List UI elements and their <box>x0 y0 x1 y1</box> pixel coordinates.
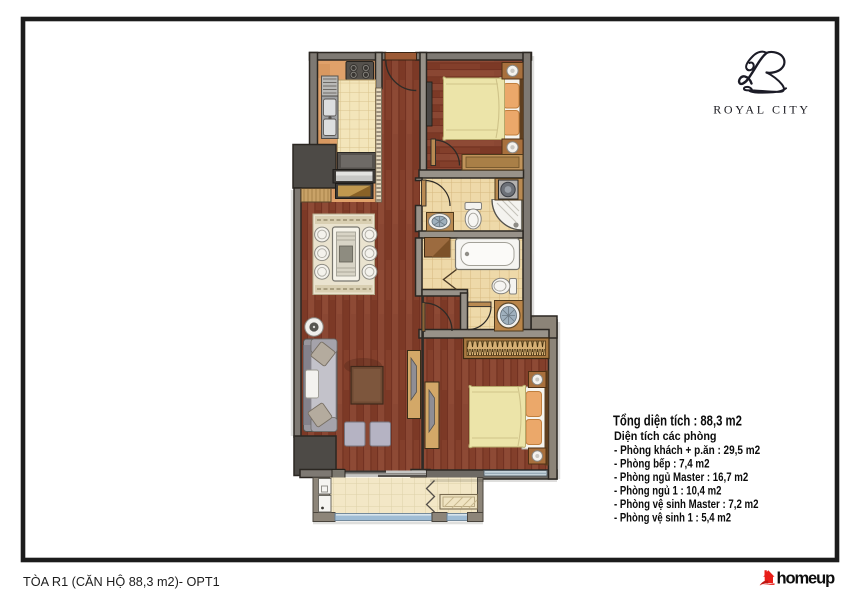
svg-text:TÒA R1 (CĂN HỘ 88,3 m2)- OPT1: TÒA R1 (CĂN HỘ 88,3 m2)- OPT1 <box>23 574 220 589</box>
svg-text:homeup: homeup <box>777 570 836 588</box>
svg-text:Diện tích các phòng: Diện tích các phòng <box>614 431 717 444</box>
svg-text:- Phòng ngủ 1 : 10,4 m2: - Phòng ngủ 1 : 10,4 m2 <box>614 485 721 498</box>
svg-text:- Phòng ngủ Master : 16,7 m2: - Phòng ngủ Master : 16,7 m2 <box>614 471 748 484</box>
svg-text:- Phòng bếp : 7,4 m2: - Phòng bếp : 7,4 m2 <box>614 458 710 471</box>
svg-text:- Phòng vệ sinh 1 : 5,4 m2: - Phòng vệ sinh 1 : 5,4 m2 <box>614 512 731 525</box>
svg-text:- Phòng khách + p.ăn : 29,5 m2: - Phòng khách + p.ăn : 29,5 m2 <box>614 444 760 457</box>
svg-text:ROYAL CITY: ROYAL CITY <box>713 103 811 117</box>
svg-text:- Phòng vệ sinh Master : 7,2 m: - Phòng vệ sinh Master : 7,2 m2 <box>614 498 759 511</box>
svg-text:Tổng diện tích : 88,3 m2: Tổng diện tích : 88,3 m2 <box>613 412 742 429</box>
